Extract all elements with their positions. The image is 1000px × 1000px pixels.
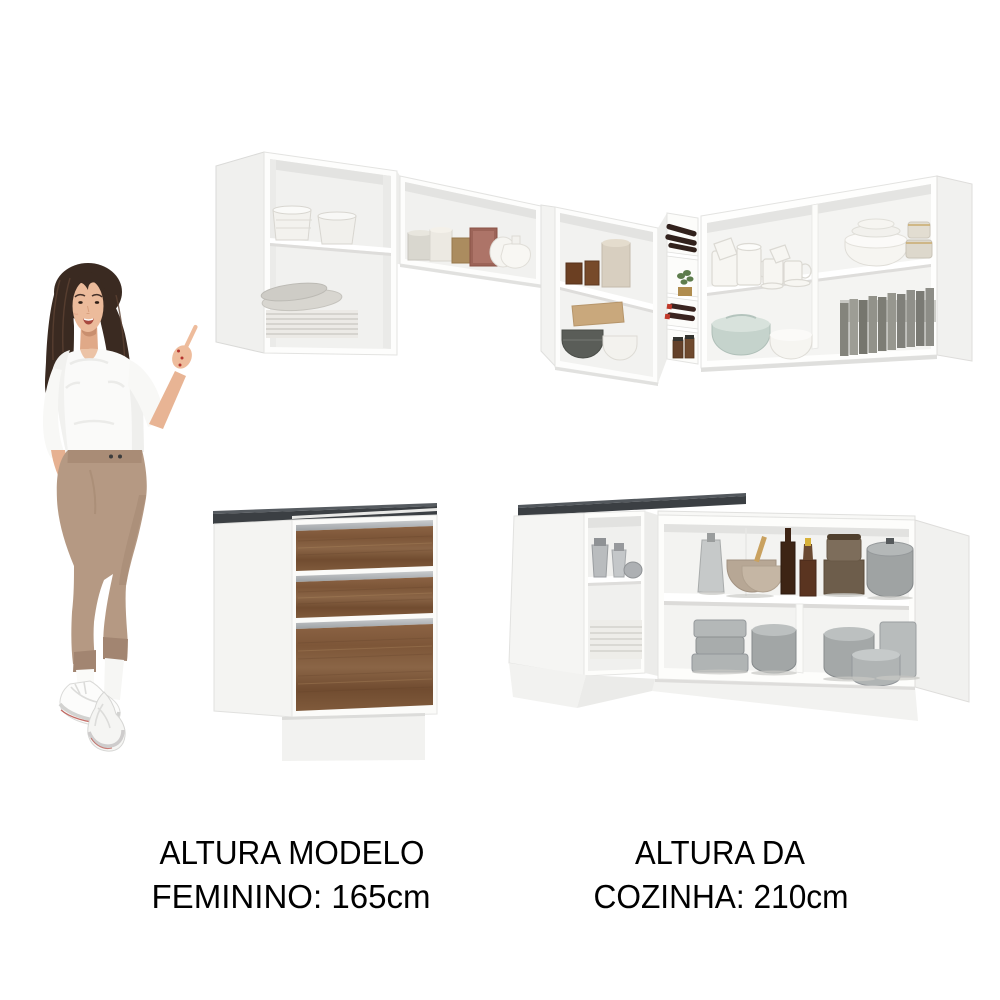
svg-text:ALTURA MODELO: ALTURA MODELO xyxy=(160,835,425,872)
svg-text:COZINHA: 210cm: COZINHA: 210cm xyxy=(594,879,849,916)
svg-text:FEMININO: 165cm: FEMININO: 165cm xyxy=(152,879,431,916)
svg-text:ALTURA DA: ALTURA DA xyxy=(635,835,806,872)
